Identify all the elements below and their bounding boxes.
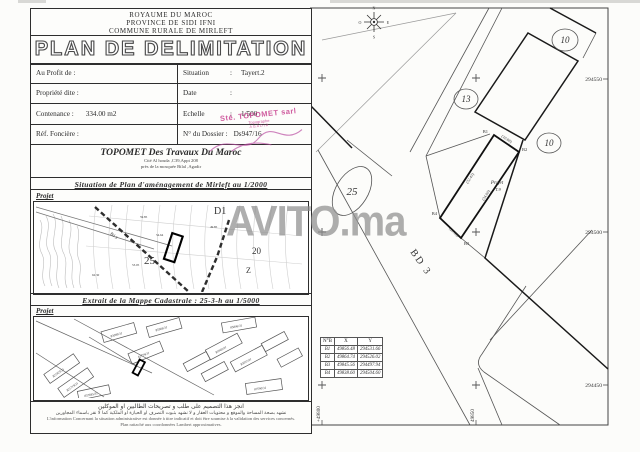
parcel-lot: T.9 <box>495 187 501 192</box>
elevation-2: 54.64 <box>156 233 164 237</box>
situation-label: Situation <box>183 69 227 77</box>
zone-d1-label: D1 <box>214 206 226 217</box>
elevation-1: 59.85 <box>140 215 148 219</box>
administrative-header: ROYAUME DU MAROC PROVINCE DE SIDI IFNI C… <box>31 9 311 36</box>
dim-top: (10.00) <box>501 133 514 144</box>
propriete-label: Propriété dite : <box>36 89 79 97</box>
projet-label-1: Projet <box>36 192 54 200</box>
block-number-circles <box>324 29 578 222</box>
colon: : <box>230 89 232 97</box>
coords-row-b4: B4 49838.60 294504.60 <box>321 370 383 378</box>
corner-b4: B4 <box>432 211 438 216</box>
b1-y: 294531.66 <box>357 346 382 354</box>
date-label: Date <box>183 89 227 97</box>
parcel-label-4: 82779/31 <box>137 351 150 359</box>
block-number-13: 13 <box>462 94 472 104</box>
firm-address-2: près de la mosquée Bilal ,Agadir <box>31 164 311 170</box>
title-block-panel: ROYAUME DU MAROC PROVINCE DE SIDI IFNI C… <box>30 8 312 434</box>
b2-y: 294526.02 <box>357 354 382 362</box>
compass-o: O <box>359 20 362 25</box>
dossier-value: Ds947/16 <box>234 130 262 138</box>
scanned-delimitation-plan: 294550 294500 294450 +49800 49850 N S E … <box>0 0 640 452</box>
bd3-street-label: BD 3 <box>408 247 434 277</box>
grid-x-label-49800: +49800 <box>316 406 322 422</box>
zone-20-label: 20 <box>252 246 262 256</box>
echelle-label: Echelle <box>183 110 227 118</box>
coords-row-b1: B1 49856.48 294531.66 <box>321 346 383 354</box>
echelle-value: 1/500 <box>241 110 257 118</box>
situation-value: Tayert.2 <box>241 69 265 77</box>
field-date: Date : <box>178 84 311 105</box>
parcel-label-10: 87590/31 <box>254 386 267 392</box>
projet-label-2: Projet <box>36 307 54 315</box>
b3-x: 49845.56 <box>334 362 357 370</box>
zone-25-label: 25 <box>144 255 156 267</box>
road-centerlines <box>36 207 172 249</box>
field-contenance: Contenance : 334.00 m2 <box>31 104 178 125</box>
plot-grid-lines <box>86 205 302 289</box>
contenance-label: Contenance : <box>36 110 74 118</box>
coords-row-b2: B2 49864.74 294526.02 <box>321 354 383 362</box>
b2-id: B2 <box>321 354 335 362</box>
cadastral-map: 83099/31 85966/31 85806/31 82779/31 8219… <box>33 316 309 401</box>
corner-b2: B2 <box>522 147 527 152</box>
elevation-3: 53.05 <box>132 263 140 267</box>
north-compass-icon: N S E O <box>359 6 390 40</box>
elevation-4: 49.85 <box>210 225 218 229</box>
parcel-label-7: 857845/31 <box>84 391 99 398</box>
disclaimer-french-1: L'information Concernant la situation ad… <box>31 416 311 422</box>
ref-fonciere-label: Réf. Foncière : <box>36 130 79 138</box>
b3-id: B3 <box>321 362 335 370</box>
cadastre-leader-line <box>89 337 137 366</box>
header-line-2: PROVINCE DE SIDI IFNI <box>31 19 311 27</box>
section-cadastre-title: Extrait de la Mappe Cadastrale : 25-3-h … <box>31 293 311 306</box>
col-x: X <box>334 338 357 346</box>
parcel-label-8: 85969/31 <box>215 345 228 354</box>
contour-lines <box>40 214 81 288</box>
field-propriete: Propriété dite : <box>31 84 178 105</box>
b1-id: B1 <box>321 346 335 354</box>
col-y: Y <box>357 338 382 346</box>
plan-light-lines <box>316 13 456 152</box>
disclaimer-french-2: Plan rattaché aux coordonnées Lambert ap… <box>31 422 311 428</box>
grid-y-label-294550: 294550 <box>585 77 602 83</box>
parcel-boundary <box>440 135 519 238</box>
header-line-1: ROYAUME DU MAROC <box>31 11 311 19</box>
b4-id: B4 <box>321 370 335 378</box>
grid-y-label-294500: 294500 <box>585 230 602 236</box>
colon: : <box>230 110 232 118</box>
firm-name: TOPOMET Des Travaux Du Maroc <box>31 148 311 158</box>
corner-b1: B1 <box>483 129 488 134</box>
parcel-label-3: 85806/31 <box>230 323 243 329</box>
coords-header-row: N°B X Y <box>321 338 383 346</box>
block-number-10b: 10 <box>545 138 555 148</box>
elevation-5: 62.30 <box>92 273 100 277</box>
parcel-label-2: 85966/31 <box>155 325 168 332</box>
corner-b3: B3 <box>464 241 470 246</box>
disclaimer-arabic-1: انجز هذا التصميم على طلب و تصريحات الطال… <box>31 404 311 410</box>
grid-y-ticks <box>603 79 608 385</box>
disclaimer-box: انجز هذا التصميم على طلب و تصريحات الطال… <box>31 401 311 433</box>
au-profit-label: Au Profit de : <box>36 69 75 77</box>
parcel-label-5: 821925/31 <box>52 367 66 378</box>
field-ref-fonciere: Réf. Foncière : <box>31 125 178 146</box>
parcel-label-6: 821719/31 <box>66 381 80 392</box>
block-number-25: 25 <box>347 186 359 198</box>
b4-x: 49838.60 <box>334 370 357 378</box>
col-nb: N°B <box>321 338 335 346</box>
dim-left: (32.43) <box>464 171 475 184</box>
b2-x: 49864.74 <box>334 354 357 362</box>
coords-row-b3: B3 49845.56 294497.94 <box>321 362 383 370</box>
field-echelle: Echelle : 1/500 <box>178 104 311 125</box>
parcel-name: Projet <box>490 181 504 186</box>
b1-x: 49856.48 <box>334 346 357 354</box>
dossier-label: N° du Dossier : <box>183 130 228 138</box>
info-grid: Au Profit de : Situation : Tayert.2 Prop… <box>31 63 311 145</box>
b3-y: 294497.94 <box>357 362 382 370</box>
grid-y-label-294450: 294450 <box>585 383 602 389</box>
block-number-10a: 10 <box>561 35 571 45</box>
field-au-profit: Au Profit de : <box>31 63 178 84</box>
parcel-label-9: 83097/31 <box>240 357 253 366</box>
compass-s: S <box>373 35 375 40</box>
colon: : <box>230 69 232 77</box>
compass-n: N <box>373 6 376 11</box>
grid-x-ticks <box>322 420 476 425</box>
surveyor-firm-block: TOPOMET Des Travaux Du Maroc Cité Al hou… <box>31 145 311 177</box>
document-title: PLAN DE DELIMITATION <box>31 36 311 65</box>
zone-z-label: Z <box>246 266 251 275</box>
dashed-roads <box>95 207 229 292</box>
coordinates-table: N°B X Y B1 49856.48 294531.66 B2 49864.7… <box>320 337 383 378</box>
situation-map: D1 25 20 Z Bd 3 59.85 54.64 53.05 49.85 … <box>33 201 309 295</box>
section-situation-title: Situation de Plan d'aménagement de Mirle… <box>31 177 311 190</box>
field-situation: Situation : Tayert.2 <box>178 63 311 84</box>
grid-x-label-49850: 49850 <box>470 409 476 422</box>
bd3-small-label: Bd 3 <box>109 231 118 240</box>
b4-y: 294504.60 <box>357 370 382 378</box>
compass-e: E <box>387 20 390 25</box>
contenance-value: 334.00 m2 <box>86 110 117 118</box>
header-line-3: COMMUNE RURALE DE MIRLEFT <box>31 27 311 35</box>
field-dossier: N° du Dossier : Ds947/16 <box>178 125 311 146</box>
